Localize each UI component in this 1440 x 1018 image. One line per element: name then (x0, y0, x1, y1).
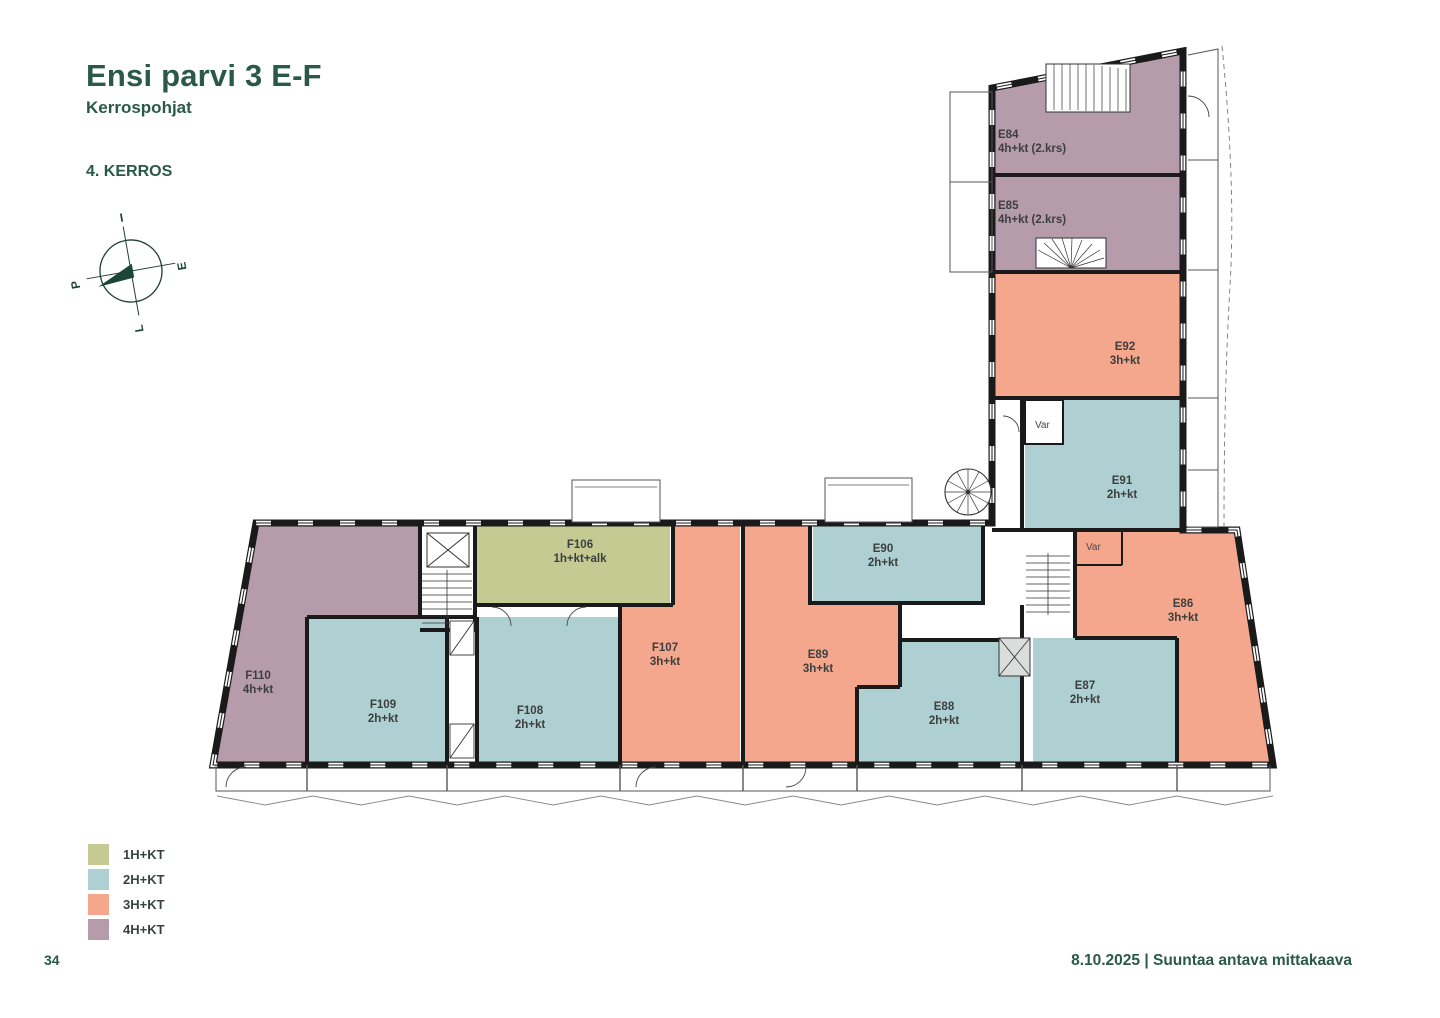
svg-text:2h+kt: 2h+kt (929, 715, 960, 727)
legend-swatch-2hkt (88, 869, 109, 890)
legend-item-1hkt: 1H+KT (88, 842, 165, 867)
svg-text:1h+kt+alk: 1h+kt+alk (553, 553, 607, 565)
floor-plan: I E L P (0, 0, 1440, 1018)
svg-text:3h+kt: 3h+kt (1110, 355, 1141, 367)
svg-text:3h+kt: 3h+kt (650, 656, 681, 668)
spiral-staircase-icon (945, 469, 991, 515)
balcony-awning-zigzag (217, 796, 1273, 805)
apartment-e91-label: E91 (1112, 475, 1133, 487)
apartment-e89-label: E89 (808, 649, 828, 661)
apartment-e87-label: E87 (1075, 680, 1095, 692)
apartment-f106-region (475, 525, 670, 605)
apartment-e92-region (992, 272, 1183, 398)
apartment-f106-label: F106 (567, 539, 593, 551)
apartment-f108-region (477, 617, 620, 763)
svg-text:2h+kt: 2h+kt (368, 713, 399, 725)
compass-letter-bottom: L (132, 324, 147, 334)
legend-swatch-4hkt (88, 919, 109, 940)
balcony-bay-e89 (825, 478, 912, 522)
apartment-f108-label: F108 (517, 705, 544, 717)
apartment-e92-label: E92 (1115, 341, 1135, 353)
apartment-e84-label: E84 (998, 129, 1019, 141)
apartment-e87-region (1033, 638, 1177, 763)
legend-swatch-3hkt (88, 894, 109, 915)
svg-text:3h+kt: 3h+kt (1168, 612, 1199, 624)
apartment-e88-label: E88 (934, 701, 955, 713)
legend-swatch-1hkt (88, 844, 109, 865)
svg-text:2h+kt: 2h+kt (868, 557, 899, 569)
legend-item-3hkt: 3H+KT (88, 892, 165, 917)
compass-icon: I E L P (57, 201, 198, 343)
legend-label-3hkt: 3H+KT (123, 897, 165, 912)
balcony-bay-f106 (572, 480, 660, 522)
apartment-f110-label: F110 (245, 670, 271, 682)
compass-letter-top: I (119, 211, 125, 225)
balcony-left-top (950, 92, 992, 272)
storage-label-e91: Var (1035, 420, 1050, 431)
legend-label-4hkt: 4H+KT (123, 922, 165, 937)
compass-letter-right: E (174, 261, 189, 271)
staircase-top-icon (1046, 64, 1130, 112)
legend-item-2hkt: 2H+KT (88, 867, 165, 892)
storage-label-e86: Var (1086, 542, 1101, 553)
staircase-e85-icon (1036, 238, 1106, 268)
balcony-right (1188, 46, 1232, 527)
apartment-f109-region (302, 617, 447, 763)
apartment-e90-label: E90 (873, 543, 893, 555)
legend-label-2hkt: 2H+KT (123, 872, 165, 887)
page-number: 34 (44, 952, 60, 968)
apartment-f107-label: F107 (652, 642, 678, 654)
svg-text:4h+kt (2.krs): 4h+kt (2.krs) (998, 214, 1066, 226)
apartment-e85-label: E85 (998, 200, 1019, 212)
svg-text:2h+kt: 2h+kt (1107, 489, 1138, 501)
site-boundary-line (1222, 46, 1232, 527)
balcony-bottom (216, 765, 1273, 805)
legend-item-4hkt: 4H+KT (88, 917, 165, 942)
compass-needle (95, 264, 134, 287)
svg-text:4h+kt: 4h+kt (243, 684, 274, 696)
svg-text:3h+kt: 3h+kt (803, 663, 834, 675)
legend: 1H+KT 2H+KT 3H+KT 4H+KT (88, 842, 165, 942)
apartment-f109-label: F109 (370, 699, 396, 711)
brochure-page: Ensi parvi 3 E-F Kerrospohjat 4. KERROS … (0, 0, 1440, 1018)
svg-text:2h+kt: 2h+kt (1070, 694, 1101, 706)
apartment-e86-label: E86 (1173, 598, 1193, 610)
svg-text:4h+kt (2.krs): 4h+kt (2.krs) (998, 143, 1066, 155)
compass-letter-left: P (68, 280, 83, 290)
legend-label-1hkt: 1H+KT (123, 847, 165, 862)
svg-text:2h+kt: 2h+kt (515, 719, 546, 731)
footer-note: 8.10.2025 | Suuntaa antava mittakaava (1071, 952, 1352, 970)
elevator-right (999, 638, 1030, 676)
